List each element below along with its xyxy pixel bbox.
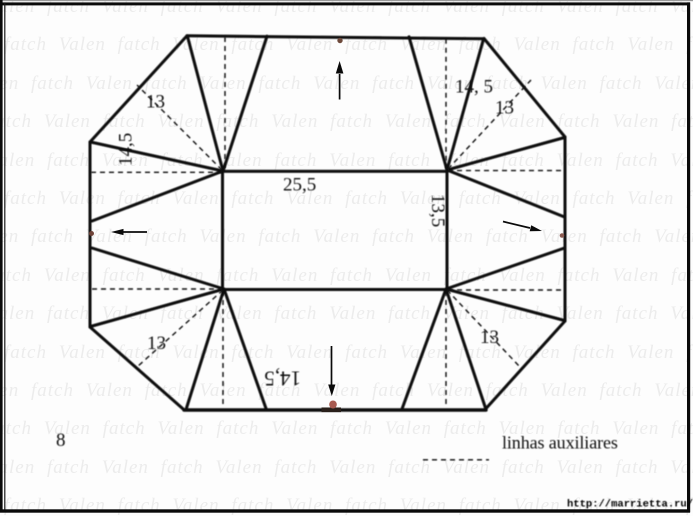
svg-text:Valen fatch Valen fatch Valen: Valen fatch Valen fatch Valen fatch Vale…	[0, 380, 693, 401]
svg-text:Valen fatch Valen fatch Valen: Valen fatch Valen fatch Valen fatch Vale…	[0, 188, 693, 209]
svg-text:13: 13	[495, 98, 514, 119]
svg-text:14,5: 14,5	[264, 367, 301, 391]
svg-text:Valen fatch Valen fatch Valen: Valen fatch Valen fatch Valen fatch Vale…	[0, 457, 693, 478]
svg-text:14, 5: 14, 5	[455, 77, 493, 98]
svg-text:Valen fatch Valen fatch Valen: Valen fatch Valen fatch Valen fatch Vale…	[0, 265, 693, 286]
svg-text:Valen fatch Valen fatch Valen: Valen fatch Valen fatch Valen fatch Vale…	[0, 226, 693, 247]
svg-text:http://marrietta.ru/: http://marrietta.ru/	[567, 499, 693, 511]
svg-text:13,5: 13,5	[427, 194, 448, 227]
svg-text:linhas auxiliares: linhas auxiliares	[502, 433, 618, 453]
svg-text:13: 13	[480, 327, 499, 348]
svg-text:25,5: 25,5	[283, 175, 316, 196]
svg-text:Valen fatch Valen fatch Valen: Valen fatch Valen fatch Valen fatch Vale…	[0, 73, 693, 94]
svg-text:13: 13	[146, 92, 165, 113]
svg-text:Valen fatch Valen fatch Valen: Valen fatch Valen fatch Valen fatch Vale…	[0, 342, 693, 363]
svg-text:Valen fatch Valen fatch Valen: Valen fatch Valen fatch Valen fatch Vale…	[0, 150, 693, 171]
svg-text:14,5: 14,5	[116, 133, 137, 166]
svg-text:13: 13	[147, 333, 166, 354]
svg-text:8: 8	[56, 430, 66, 451]
svg-text:Valen fatch Valen fatch Valen: Valen fatch Valen fatch Valen fatch Vale…	[0, 303, 693, 324]
